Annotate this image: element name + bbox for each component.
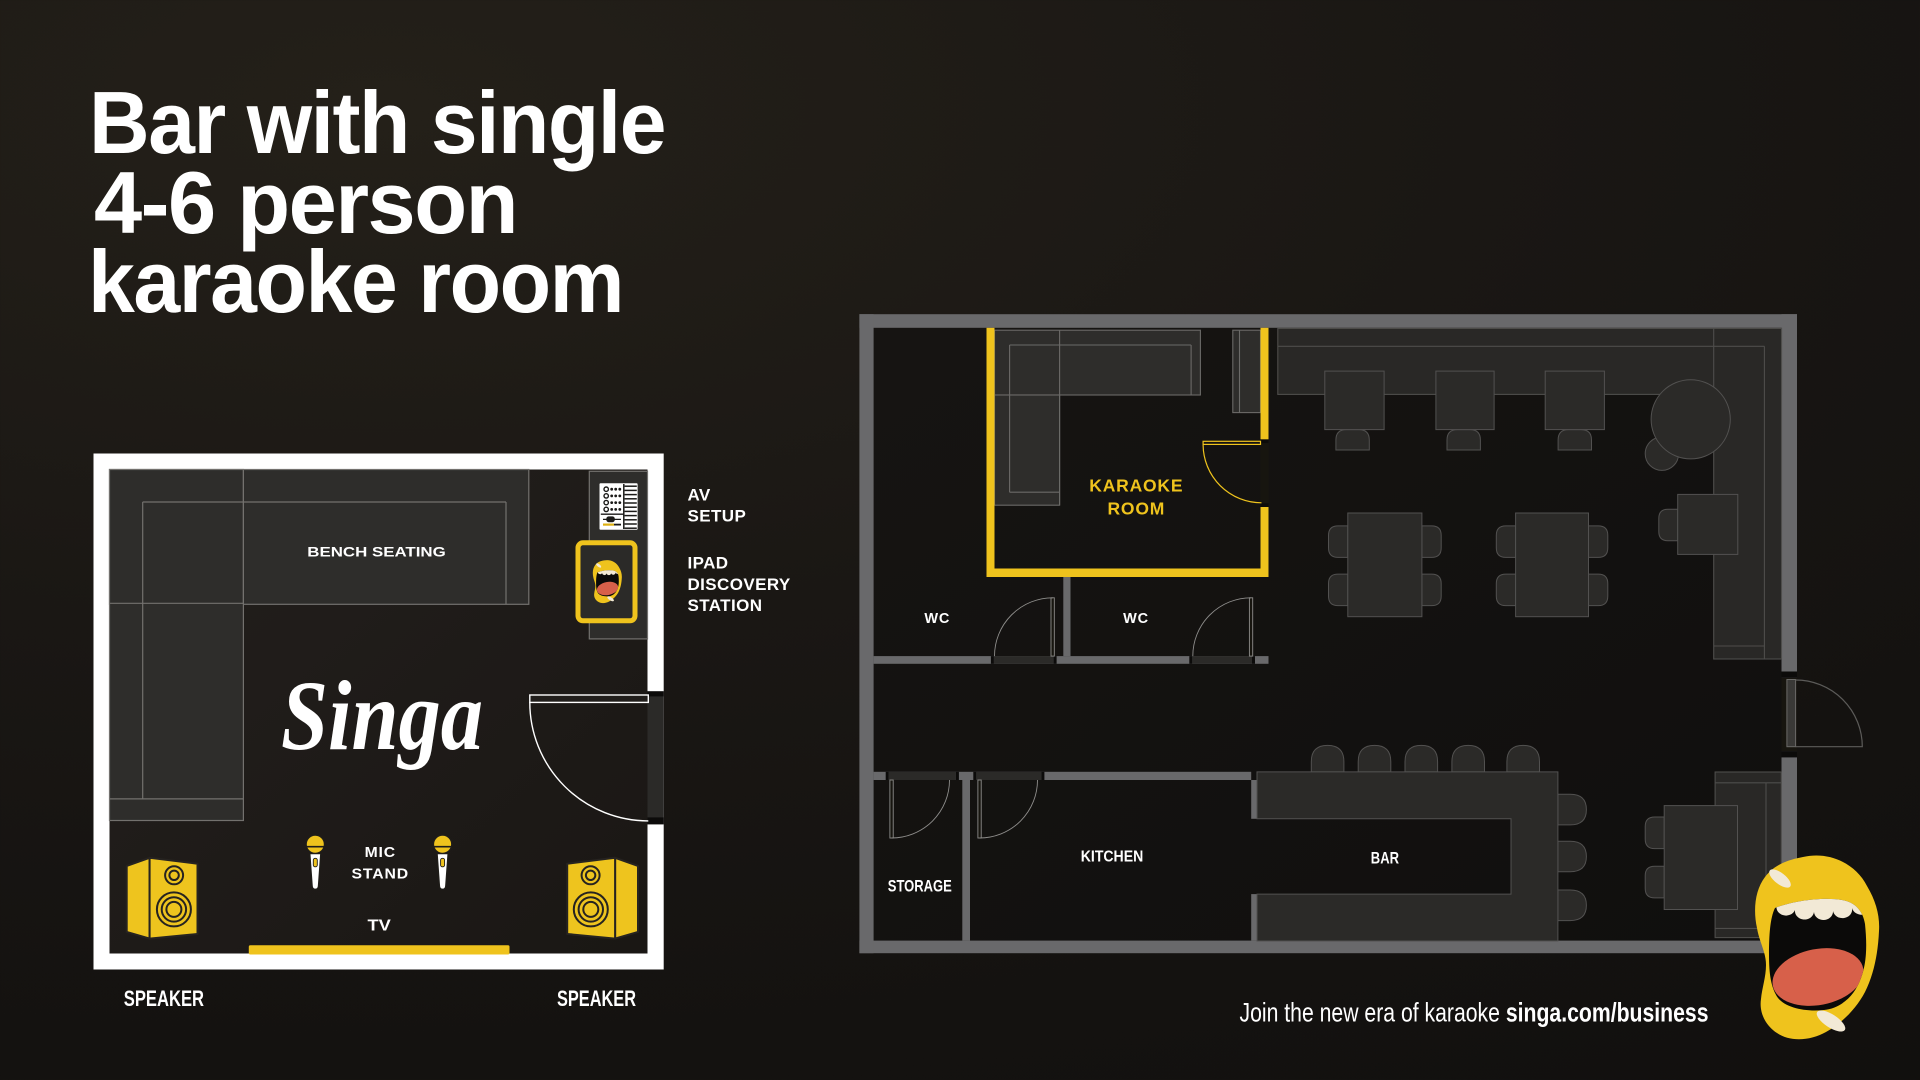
svg-text:STATION: STATION	[688, 596, 763, 615]
svg-text:IPAD: IPAD	[688, 554, 729, 573]
svg-text:WC: WC	[924, 611, 950, 627]
svg-text:ROOM: ROOM	[1107, 498, 1165, 518]
svg-text:Singa: Singa	[281, 660, 483, 771]
svg-text:SPEAKER: SPEAKER	[124, 986, 204, 1011]
svg-text:BAR: BAR	[1371, 848, 1399, 867]
svg-text:MIC: MIC	[365, 845, 396, 861]
svg-text:BENCH SEATING: BENCH SEATING	[307, 545, 446, 560]
svg-text:WC: WC	[1123, 611, 1149, 627]
svg-text:SPEAKER: SPEAKER	[557, 986, 636, 1011]
svg-text:KARAOKE: KARAOKE	[1089, 475, 1183, 495]
svg-text:STORAGE: STORAGE	[888, 878, 952, 896]
svg-text:KITCHEN: KITCHEN	[1081, 848, 1144, 865]
svg-text:TV: TV	[368, 918, 392, 935]
svg-text:Join the new era of karaoke si: Join the new era of karaoke singa.com/bu…	[1240, 998, 1709, 1028]
svg-text:karaoke room: karaoke room	[88, 232, 623, 331]
svg-text:SETUP: SETUP	[688, 507, 747, 526]
svg-text:AV: AV	[688, 485, 711, 504]
svg-text:DISCOVERY: DISCOVERY	[688, 575, 791, 594]
svg-text:STAND: STAND	[352, 866, 410, 882]
